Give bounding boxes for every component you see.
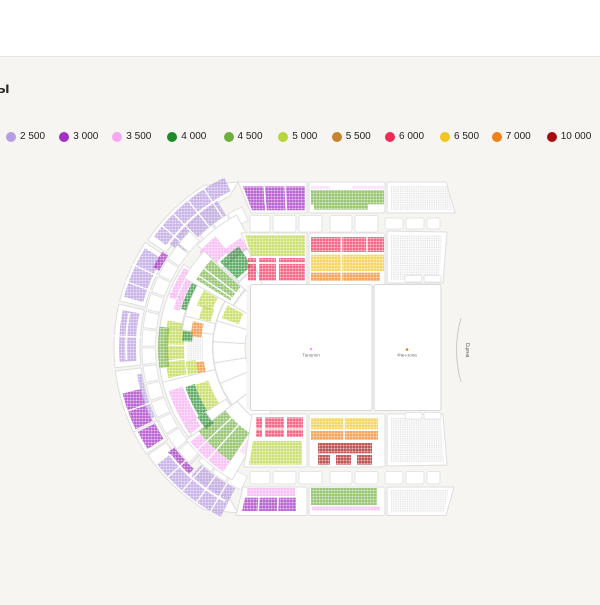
svg-text:Сцена: Сцена (464, 343, 470, 358)
svg-text:Танцпол: Танцпол (302, 353, 320, 358)
svg-text:Фан-зона: Фан-зона (397, 353, 417, 358)
